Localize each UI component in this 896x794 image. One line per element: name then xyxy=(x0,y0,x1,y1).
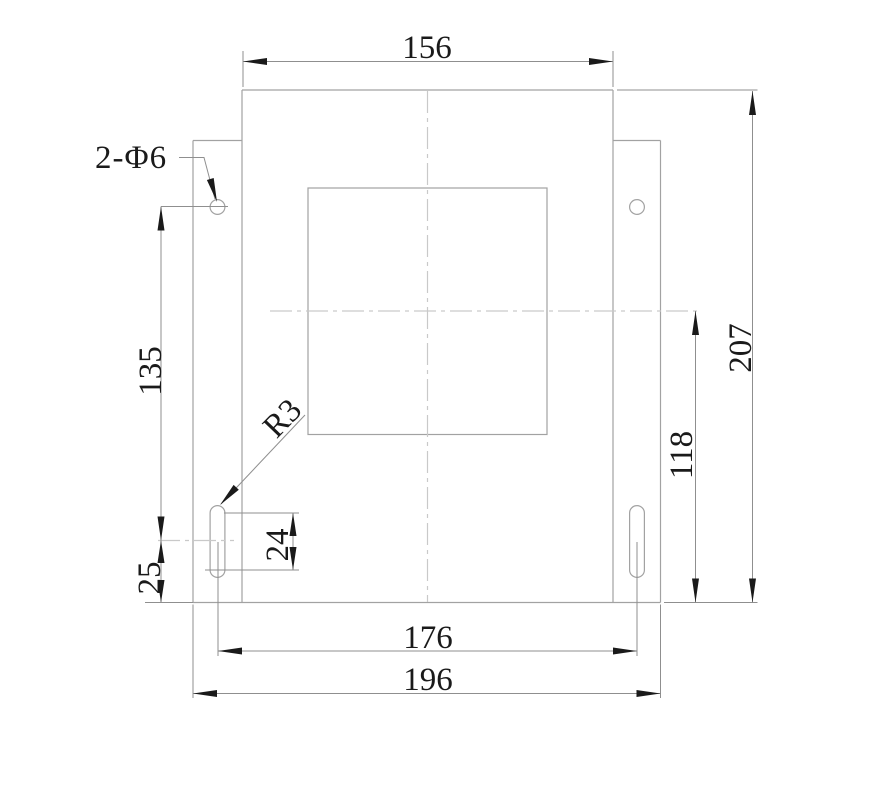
arrow-176-left xyxy=(218,648,242,655)
arrow-196-right xyxy=(637,690,661,697)
arrow-135-top xyxy=(158,207,165,231)
arrow-118-bottom xyxy=(692,579,699,603)
arrow-207-top xyxy=(749,91,756,115)
hole-right xyxy=(630,200,645,215)
dimension-line-group xyxy=(145,51,758,698)
arrow-r3-leader xyxy=(220,485,239,505)
arrow-156-right xyxy=(589,58,613,65)
dim-label-holes-callout: 2-Φ6 xyxy=(95,140,167,176)
arrow-176-right xyxy=(613,648,637,655)
leader-line-holes xyxy=(179,158,215,200)
arrow-holes-leader xyxy=(207,178,217,202)
dim-label-overall-width: 196 xyxy=(403,662,453,698)
dim-label-top-width: 156 xyxy=(402,30,452,66)
dim-label-slot-to-bottom: 25 xyxy=(132,562,168,595)
technical-drawing: 156 176 196 207 118 135 25 24 R3 2-Φ6 xyxy=(0,0,896,794)
centerline-group xyxy=(158,91,699,602)
drawing-canvas: 156 176 196 207 118 135 25 24 R3 2-Φ6 xyxy=(0,0,896,794)
dim-label-corner-radius: R3 xyxy=(256,392,309,445)
arrow-25-top xyxy=(158,541,165,564)
arrow-196-left xyxy=(193,690,217,697)
arrowhead-group xyxy=(158,58,757,697)
dim-label-hole-to-slot: 135 xyxy=(133,346,169,396)
dim-label-overall-height: 207 xyxy=(723,323,759,373)
part-outline-group xyxy=(193,90,661,603)
dim-label-center-to-bottom: 118 xyxy=(664,431,700,479)
dim-label-slot-length: 24 xyxy=(260,529,296,562)
arrow-135-bottom xyxy=(158,517,165,541)
arrow-207-bottom xyxy=(749,579,756,603)
arrow-118-top xyxy=(692,311,699,335)
dim-label-holes-spacing: 176 xyxy=(403,620,453,656)
arrow-156-left xyxy=(243,58,267,65)
